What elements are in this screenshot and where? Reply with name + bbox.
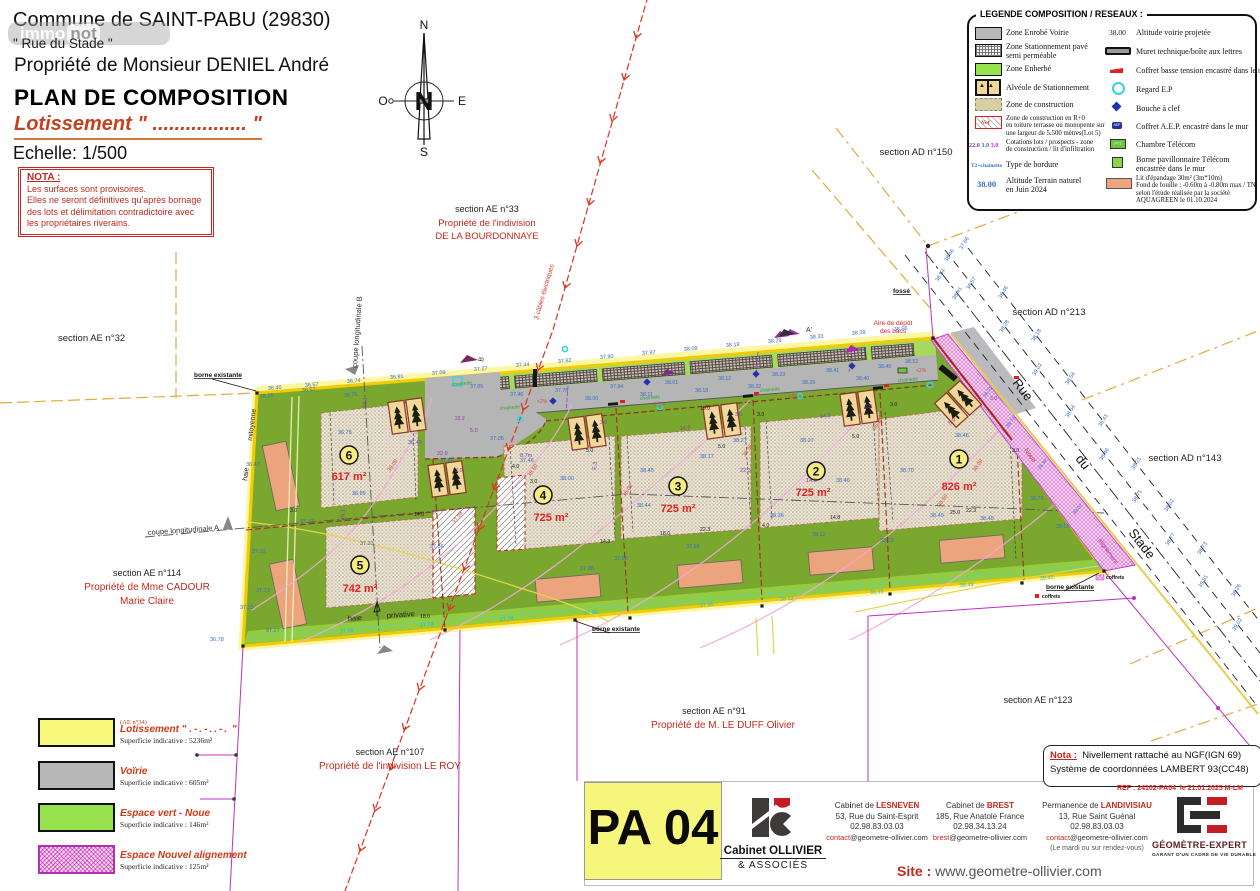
svg-text:38.22: 38.22: [748, 384, 761, 390]
svg-text:B: B: [478, 356, 486, 362]
svg-text:38.27: 38.27: [733, 438, 747, 444]
svg-text:5: 5: [357, 559, 364, 573]
svg-text:14.0: 14.0: [414, 512, 424, 518]
svg-text:3.0: 3.0: [890, 402, 897, 408]
svg-text:36.40: 36.40: [268, 385, 282, 392]
svg-text:3.0: 3.0: [290, 508, 297, 514]
svg-text:38.57: 38.57: [966, 276, 978, 291]
svg-text:38.26: 38.26: [1231, 583, 1243, 598]
svg-text:37.98: 37.98: [580, 566, 594, 572]
svg-text:25.0: 25.0: [950, 510, 960, 516]
svg-text:22.0: 22.0: [437, 451, 448, 457]
svg-text:3.0: 3.0: [600, 420, 607, 426]
svg-text:Marie Claire: Marie Claire: [120, 596, 174, 607]
svg-text:38.76: 38.76: [1030, 496, 1044, 502]
svg-text:38.11: 38.11: [640, 392, 653, 398]
svg-text:38.49: 38.49: [980, 516, 994, 522]
svg-text:19.0: 19.0: [700, 406, 710, 412]
svg-text:section AE n°123: section AE n°123: [1004, 695, 1073, 705]
svg-text:<2%: <2%: [537, 399, 548, 405]
svg-text:36.85: 36.85: [352, 491, 366, 497]
svg-text:37.09: 37.09: [432, 370, 446, 377]
svg-text:A': A': [806, 327, 812, 334]
svg-text:38.36: 38.36: [770, 513, 784, 519]
svg-text:fossé: fossé: [893, 288, 910, 295]
svg-text:coffrets: coffrets: [1042, 594, 1061, 600]
svg-text:3: 3: [675, 480, 682, 494]
svg-text:-1.5%: -1.5%: [652, 402, 666, 408]
svg-text:37.15: 37.15: [240, 605, 254, 611]
svg-text:38.44: 38.44: [637, 503, 651, 509]
svg-text:38.29: 38.29: [802, 380, 815, 386]
svg-text:coupe longitudinale B: coupe longitudinale B: [350, 296, 364, 368]
svg-text:Propriété de Mme CADOUR: Propriété de Mme CADOUR: [84, 582, 210, 593]
svg-text:37.95: 37.95: [584, 610, 598, 617]
svg-text:3.0: 3.0: [865, 404, 872, 410]
svg-text:38.46: 38.46: [836, 478, 850, 484]
svg-text:section AD n°150: section AD n°150: [880, 147, 953, 158]
svg-text:37.27: 37.27: [266, 628, 280, 634]
svg-text:section AE n°33: section AE n°33: [455, 204, 519, 214]
svg-text:36.75: 36.75: [344, 392, 358, 399]
svg-text:1: 1: [956, 453, 963, 467]
svg-text:18.0: 18.0: [660, 531, 670, 537]
svg-text:38.00: 38.00: [560, 476, 574, 482]
svg-text:37.46: 37.46: [510, 392, 523, 398]
svg-text:5.0: 5.0: [586, 448, 593, 454]
svg-text:38.45: 38.45: [870, 589, 884, 596]
svg-text:section AD n°143: section AD n°143: [1149, 453, 1222, 464]
svg-text:38.22: 38.22: [880, 538, 894, 544]
svg-text:36.78: 36.78: [210, 637, 224, 643]
svg-text:38.49: 38.49: [878, 364, 891, 370]
svg-text:37.05: 37.05: [490, 436, 504, 442]
svg-text:38.02: 38.02: [1164, 498, 1176, 513]
svg-text:37.95: 37.95: [700, 602, 714, 609]
svg-text:38.39: 38.39: [852, 330, 866, 337]
svg-text:E: E: [458, 94, 466, 108]
svg-text:725 m²: 725 m²: [534, 512, 569, 524]
svg-text:38.09: 38.09: [684, 346, 698, 353]
svg-text:Propriété de M. LE DUFF Olivie: Propriété de M. LE DUFF Olivier: [651, 720, 796, 731]
svg-text:14.3: 14.3: [680, 425, 691, 432]
svg-text:36.43: 36.43: [408, 440, 422, 446]
svg-text:14.8: 14.8: [830, 515, 840, 521]
svg-text:38.12: 38.12: [812, 532, 826, 538]
svg-text:37.62: 37.62: [558, 358, 572, 365]
svg-text:36.20: 36.20: [260, 393, 274, 400]
svg-text:N: N: [420, 18, 429, 32]
svg-text:10.1: 10.1: [362, 397, 369, 408]
svg-text:section AE n°32: section AE n°32: [58, 333, 125, 344]
svg-text:14.3: 14.3: [820, 413, 831, 420]
svg-text:38.77: 38.77: [1165, 532, 1177, 547]
svg-text:Propriété de l'indivision LE R: Propriété de l'indivision LE ROY: [319, 761, 461, 772]
svg-text:37.95: 37.95: [686, 544, 700, 550]
svg-text:38.27: 38.27: [800, 438, 814, 444]
svg-text:36.75: 36.75: [338, 430, 352, 436]
svg-text:36.74: 36.74: [347, 378, 361, 385]
svg-text:2: 2: [813, 465, 820, 479]
svg-text:37.44: 37.44: [516, 362, 530, 369]
svg-text:section AD n°213: section AD n°213: [1013, 307, 1086, 318]
svg-text:14.3: 14.3: [600, 539, 610, 545]
svg-text:38.52: 38.52: [905, 359, 918, 365]
svg-text:37.94: 37.94: [610, 384, 623, 390]
svg-text:38.01: 38.01: [665, 380, 678, 386]
svg-text:36.91: 36.91: [390, 374, 404, 381]
svg-text:37.33: 37.33: [360, 541, 374, 547]
svg-text:37.02: 37.02: [252, 549, 266, 555]
svg-text:3.0: 3.0: [530, 479, 537, 485]
svg-text:4.0: 4.0: [512, 464, 519, 470]
svg-text:39.05: 39.05: [1056, 524, 1070, 530]
svg-text:<2%: <2%: [788, 394, 799, 400]
svg-text:5.0: 5.0: [718, 444, 725, 450]
svg-text:38.49: 38.49: [930, 513, 944, 519]
svg-text:38.41: 38.41: [826, 368, 839, 374]
svg-text:38.54: 38.54: [935, 268, 947, 283]
svg-text:38.46: 38.46: [998, 285, 1010, 300]
svg-text:section AE n°107: section AE n°107: [356, 747, 425, 757]
svg-text:du: du: [1073, 452, 1094, 473]
svg-text:38.56: 38.56: [894, 326, 908, 333]
svg-text:E.3: E.3: [592, 461, 599, 470]
svg-text:38.33: 38.33: [810, 334, 824, 341]
svg-text:38.73: 38.73: [1197, 541, 1209, 556]
svg-text:38.49: 38.49: [960, 582, 974, 589]
svg-text:38.12: 38.12: [780, 596, 794, 603]
svg-text:37.73: 37.73: [420, 622, 434, 629]
svg-text:37.97: 37.97: [642, 350, 656, 357]
svg-text:36.41: 36.41: [1098, 413, 1110, 428]
svg-text:3 câbles électriques: 3 câbles électriques: [533, 263, 556, 321]
svg-text:5.0: 5.0: [852, 434, 859, 440]
svg-text:37.13: 37.13: [256, 588, 270, 594]
svg-text:36.47: 36.47: [246, 462, 260, 468]
svg-text:37.80: 37.80: [600, 354, 614, 361]
svg-text:borne existante: borne existante: [194, 372, 242, 379]
svg-text:725 m²: 725 m²: [796, 487, 831, 499]
svg-text:3.0: 3.0: [757, 412, 764, 418]
svg-text:38.00: 38.00: [585, 396, 598, 402]
svg-text:22.3: 22.3: [740, 468, 751, 474]
svg-text:37.12: 37.12: [300, 519, 314, 525]
svg-text:4.0: 4.0: [762, 523, 769, 529]
svg-text:38.71: 38.71: [1132, 489, 1144, 504]
svg-text:3.0: 3.0: [990, 396, 997, 402]
svg-text:14.3: 14.3: [806, 478, 817, 484]
svg-text:3.0: 3.0: [735, 412, 742, 418]
svg-text:8.7m: 8.7m: [520, 453, 533, 459]
svg-text:38.17: 38.17: [700, 454, 714, 460]
svg-text:18.0: 18.0: [420, 614, 430, 620]
svg-text:38.45: 38.45: [640, 468, 654, 474]
svg-text:coupe longitudinale A: coupe longitudinale A: [148, 523, 220, 537]
svg-text:3.0: 3.0: [455, 468, 463, 474]
svg-text:<2%: <2%: [916, 368, 927, 374]
svg-text:38.70: 38.70: [900, 468, 914, 474]
svg-text:38.12: 38.12: [718, 376, 731, 382]
svg-text:16.1: 16.1: [340, 509, 347, 520]
svg-text:742 m²: 742 m²: [343, 583, 378, 595]
svg-text:617 m²: 617 m²: [332, 471, 367, 483]
svg-text:38.40: 38.40: [856, 376, 869, 382]
svg-text:N: N: [415, 86, 434, 116]
svg-text:coffrets: coffrets: [1106, 575, 1125, 581]
svg-text:38.29: 38.29: [768, 338, 782, 345]
svg-text:5.0: 5.0: [470, 428, 478, 434]
svg-text:DE LA BOURDONNAYE: DE LA BOURDONNAYE: [435, 231, 538, 242]
svg-text:37.78: 37.78: [500, 616, 514, 623]
svg-text:O: O: [378, 94, 387, 108]
svg-text:37.56: 37.56: [430, 544, 444, 550]
svg-text:37.27: 37.27: [474, 366, 488, 373]
svg-text:39.45: 39.45: [1040, 575, 1054, 582]
svg-text:37.05: 37.05: [470, 384, 483, 390]
svg-text:725 m²: 725 m²: [661, 503, 696, 515]
svg-text:38.18: 38.18: [695, 388, 708, 394]
svg-text:37.58: 37.58: [614, 556, 628, 562]
svg-text:36.57: 36.57: [302, 387, 316, 394]
svg-text:38.19: 38.19: [726, 342, 740, 349]
svg-text:3.0: 3.0: [1012, 448, 1019, 454]
svg-text:22.3: 22.3: [700, 527, 710, 533]
svg-text:haie: haie: [348, 613, 363, 623]
svg-text:Propriété de l'indivision: Propriété de l'indivision: [438, 218, 535, 229]
svg-text:38.23: 38.23: [772, 372, 785, 378]
svg-text:section AE n°91: section AE n°91: [682, 706, 746, 716]
svg-text:37.59: 37.59: [340, 628, 354, 635]
svg-text:826 m²: 826 m²: [942, 481, 977, 493]
svg-text:22.2: 22.2: [455, 416, 465, 422]
svg-text:22.3: 22.3: [966, 508, 976, 514]
svg-text:37.86: 37.86: [440, 458, 454, 464]
svg-text:S: S: [420, 145, 428, 159]
svg-text:section AE n°114: section AE n°114: [113, 568, 181, 578]
svg-text:38.46: 38.46: [955, 433, 969, 439]
svg-text:37.76: 37.76: [555, 388, 568, 394]
svg-text:6: 6: [346, 449, 353, 463]
svg-text:4: 4: [540, 489, 547, 503]
